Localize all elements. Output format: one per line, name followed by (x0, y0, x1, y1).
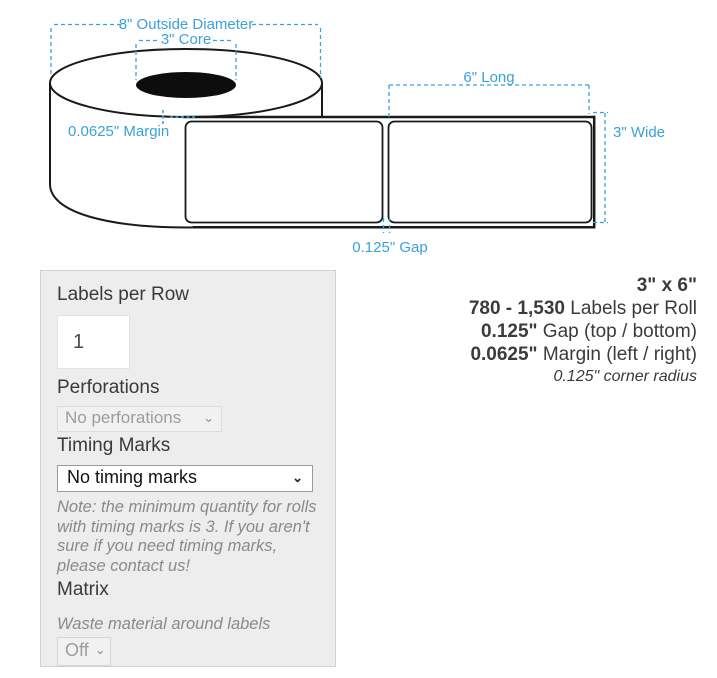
summary-gap: 0.125" Gap (top / bottom) (469, 320, 697, 343)
labels-per-roll-text: Labels per Roll (565, 298, 697, 319)
margin-value: 0.0625" (470, 344, 537, 365)
matrix-select[interactable]: Off ⌄ (57, 637, 111, 666)
summary-margin: 0.0625" Margin (left / right) (469, 343, 697, 366)
core-label: 3" Core (50, 31, 322, 48)
chevron-down-icon: ⌄ (292, 470, 303, 486)
chevron-down-icon: ⌄ (95, 642, 106, 658)
long-label: 6" Long (389, 69, 589, 86)
timing-marks-heading: Timing Marks (57, 435, 319, 457)
timing-marks-select[interactable]: No timing marks ⌄ (57, 465, 313, 492)
perforations-select[interactable]: No perforations ⌄ (57, 406, 222, 432)
chevron-down-icon: ⌄ (203, 410, 214, 426)
options-panel: Labels per Row Perforations No perforati… (40, 270, 336, 667)
matrix-description: Waste material around labels (57, 615, 329, 635)
perforations-selected-value: No perforations (65, 408, 181, 428)
summary-corner-radius: 0.125" corner radius (469, 366, 697, 388)
margin-text: Margin (left / right) (538, 344, 697, 365)
matrix-heading: Matrix (57, 579, 319, 601)
gap-label: 0.125" Gap (340, 239, 440, 256)
label-roll-diagram: 8" Outside Diameter 3" Core 0.0625" Marg… (0, 0, 717, 262)
label-left (186, 122, 383, 223)
labels-per-row-heading: Labels per Row (57, 284, 319, 306)
perforations-heading: Perforations (57, 377, 319, 399)
labels-per-roll-value: 780 - 1,530 (469, 298, 565, 319)
labels-per-row-input[interactable] (57, 315, 130, 369)
gap-value: 0.125" (481, 321, 538, 342)
margin-label: 0.0625" Margin (68, 123, 169, 140)
page: 8" Outside Diameter 3" Core 0.0625" Marg… (0, 0, 717, 678)
roll-core-hole (136, 72, 236, 98)
summary-labels-per-roll: 780 - 1,530 Labels per Roll (469, 297, 697, 320)
label-right (389, 122, 592, 223)
gap-text: Gap (top / bottom) (538, 321, 697, 342)
timing-marks-note: Note: the minimum quantity for rolls wit… (57, 498, 329, 576)
wide-label: 3" Wide (613, 124, 665, 141)
timing-marks-selected-value: No timing marks (67, 467, 197, 488)
matrix-selected-value: Off (65, 640, 89, 661)
summary-size: 3" x 6" (469, 274, 697, 297)
roll-summary: 3" x 6" 780 - 1,530 Labels per Roll 0.12… (469, 274, 697, 388)
summary-size-value: 3" x 6" (637, 275, 697, 296)
